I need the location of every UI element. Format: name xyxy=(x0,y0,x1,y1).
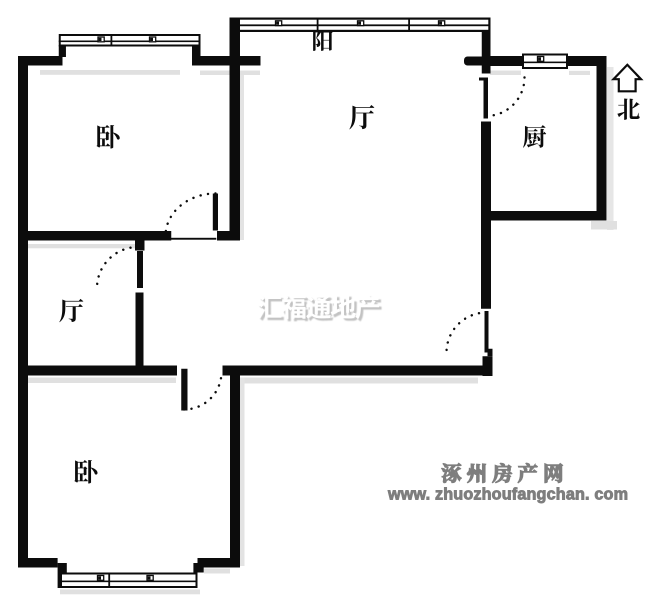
svg-text:www. zhuozhoufangchan. com: www. zhuozhoufangchan. com xyxy=(387,486,628,504)
